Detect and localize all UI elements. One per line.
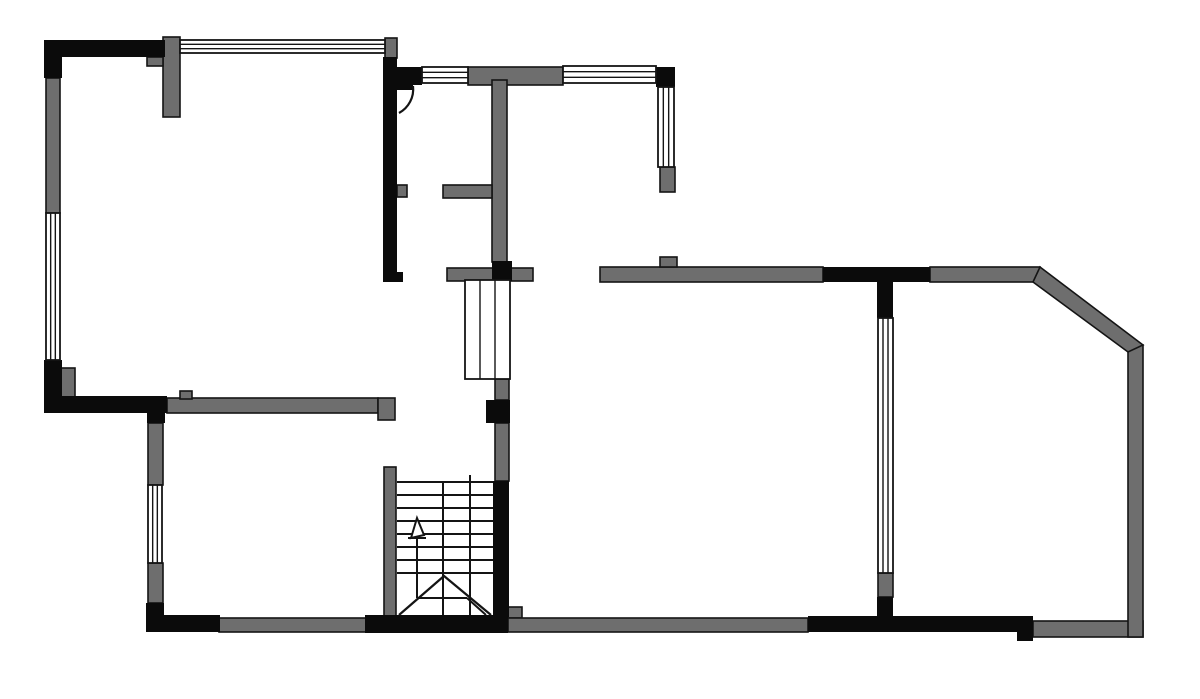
wall-gray-segment — [147, 57, 163, 66]
wall-gray-segment — [495, 423, 509, 481]
wall-gray-segment — [492, 80, 507, 262]
window-frame — [465, 280, 510, 379]
floor-plan-svg — [0, 0, 1200, 699]
wall-dark-segment — [44, 40, 165, 57]
wall-dark-segment — [823, 267, 930, 282]
wall-gray-segment — [219, 618, 366, 632]
wall-gray-segment — [495, 379, 509, 400]
wall-dark-segment — [493, 481, 509, 617]
wall-gray-segment — [660, 167, 675, 192]
wall-gray-segment — [148, 563, 163, 603]
wall-dark-segment — [365, 615, 508, 633]
wall-dark-segment — [44, 40, 62, 78]
floor-plan-page — [0, 0, 1200, 699]
window-frame — [180, 40, 385, 53]
wall-gray-segment — [60, 368, 75, 397]
wall-dark-segment — [383, 57, 397, 282]
wall-gray-segment — [930, 267, 1040, 282]
wall-gray-segment — [384, 467, 396, 617]
wall-dark-segment — [877, 282, 893, 318]
wall-dark-segment — [808, 616, 1033, 632]
wall-dark-segment — [146, 615, 220, 632]
wall-gray-segment — [660, 257, 677, 267]
wall-gray-segment — [1128, 345, 1143, 637]
window-frame — [148, 485, 162, 563]
wall-gray-segment — [1033, 621, 1143, 637]
wall-gray-segment — [508, 618, 808, 632]
window-frame — [563, 66, 656, 83]
wall-gray-segment — [46, 78, 60, 213]
wall-dark-segment — [395, 272, 403, 282]
wall-gray-segment — [378, 398, 395, 420]
wall-dark-segment — [147, 406, 165, 423]
window-frame — [422, 67, 468, 83]
wall-dark-segment — [492, 261, 512, 281]
wall-gray-segment — [600, 267, 823, 282]
wall-gray-segment — [167, 398, 378, 413]
wall-dark-segment — [656, 67, 675, 87]
wall-gray-segment — [180, 391, 192, 399]
window-frame — [658, 87, 674, 167]
wall-gray-segment — [508, 607, 522, 618]
wall-gray-segment — [163, 37, 180, 117]
wall-dark-segment — [486, 400, 510, 423]
wall-gray-segment — [878, 573, 893, 597]
window-frame — [878, 318, 893, 573]
wall-gray-segment — [385, 38, 397, 58]
wall-gray-segment — [443, 185, 492, 198]
wall-gray-segment — [468, 67, 563, 85]
wall-dark-segment — [397, 81, 413, 90]
wall-gray-segment — [447, 268, 533, 281]
wall-dark-segment — [1017, 616, 1033, 641]
wall-gray-segment — [397, 185, 407, 197]
window-frame — [46, 213, 60, 360]
wall-gray-segment — [148, 423, 163, 485]
